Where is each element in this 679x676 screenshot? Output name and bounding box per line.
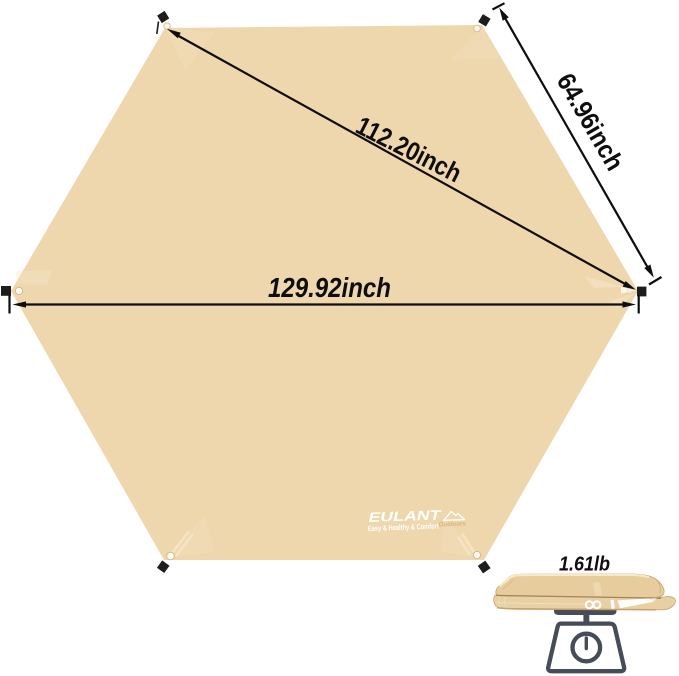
- svg-text:Outdoors: Outdoors: [439, 521, 467, 529]
- svg-text:64.96inch: 64.96inch: [551, 68, 630, 176]
- svg-text:129.92inch: 129.92inch: [268, 272, 391, 303]
- svg-text:1.61lb: 1.61lb: [559, 554, 610, 576]
